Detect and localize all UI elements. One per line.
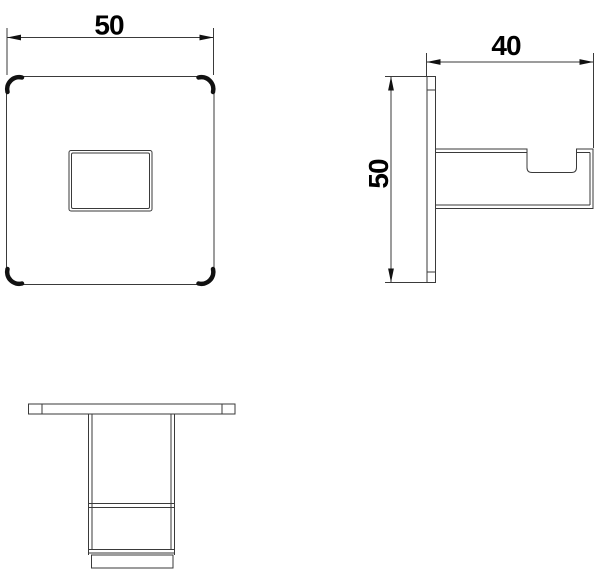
front-width-label: 50 <box>94 10 124 41</box>
side-height-label: 50 <box>363 159 394 189</box>
technical-drawing-page: 50 40 <box>0 0 600 572</box>
front-width-dimension: 50 <box>7 10 214 76</box>
side-height-dimension: 50 <box>363 77 427 283</box>
side-hook-arm-outline <box>436 149 594 209</box>
bottom-wall-plate <box>29 404 236 414</box>
front-recess-outer <box>69 151 152 212</box>
front-corner-wedge-bottom-left <box>7 269 22 284</box>
arrowhead-right <box>580 59 594 65</box>
front-corner-wedge-top-left <box>7 77 22 92</box>
side-wall-plate <box>427 77 436 283</box>
front-view: 50 <box>7 10 215 285</box>
front-plate-outline <box>7 77 215 285</box>
arrowhead-top <box>388 77 394 91</box>
side-view: 40 50 <box>363 30 594 283</box>
drawing-canvas: 50 40 <box>0 0 600 572</box>
bottom-view <box>29 404 236 568</box>
front-corner-wedge-top-right <box>199 77 214 92</box>
side-depth-label: 40 <box>491 30 521 61</box>
arrowhead-right <box>200 35 214 41</box>
arrowhead-left <box>427 59 441 65</box>
front-recess-inner <box>72 153 150 209</box>
front-corner-wedge-bottom-right <box>199 269 214 284</box>
bottom-lip-end-face <box>92 555 174 568</box>
arrowhead-bottom <box>388 269 394 283</box>
arrowhead-left <box>7 35 21 41</box>
side-depth-dimension: 40 <box>427 30 594 148</box>
